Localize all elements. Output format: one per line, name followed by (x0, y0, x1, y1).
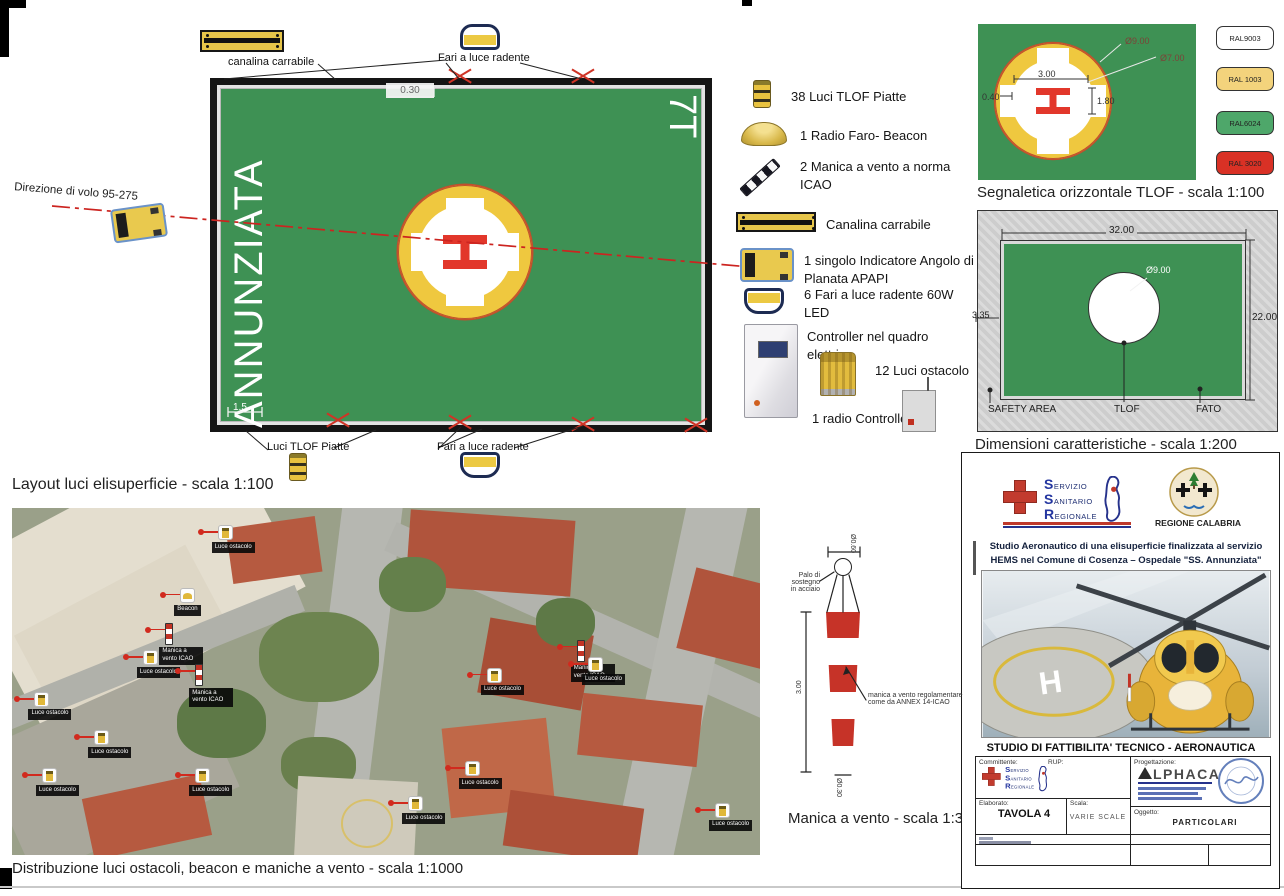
tb-table-line (1208, 844, 1209, 866)
oggetto-value: PARTICOLARI (1160, 818, 1250, 827)
calabria-outline-icon (1098, 476, 1128, 526)
dim-0-30: 0.30 (386, 83, 434, 98)
map-caption: Distribuzione luci ostacoli, beacon e ma… (12, 860, 463, 877)
map-marker-label: Luce ostacolo (481, 685, 524, 696)
radio-controller-icon (902, 390, 936, 432)
luce-icon (487, 668, 502, 683)
luce-icon (408, 796, 423, 811)
luce-icon (715, 803, 730, 818)
elaborato-label: Elaborato: (979, 800, 1009, 807)
map-marker-label: Luce ostacolo (459, 778, 502, 789)
ral-swatch: RAL6024 (1216, 111, 1274, 135)
fari-x-mark (448, 68, 472, 84)
flood-light-icon (460, 452, 500, 478)
canalina-icon (200, 30, 284, 52)
aerial-map: Luce ostacoloBeaconManica a vento ICAOLu… (12, 508, 760, 855)
calabria-outline-icon (1035, 766, 1052, 794)
legend-item-label: 2 Manica a vento a norma ICAO (800, 158, 965, 193)
scala-value: VARIE SCALE (1068, 814, 1128, 821)
dim-circle: Ø9.00 (1146, 265, 1171, 275)
legend-item-label: 1 radio Controller (812, 410, 912, 428)
luce-icon (42, 768, 57, 783)
obstacle-light-icon (820, 352, 856, 396)
fari-top-label: Fari a luce radente (438, 52, 530, 64)
fine-print (1138, 787, 1206, 790)
pole-label-line1: Palo di sostegno (792, 572, 820, 586)
map-marker-label: Luce ostacolo (36, 785, 79, 796)
map-trees (536, 598, 596, 647)
flood-light-icon (460, 24, 500, 50)
pole-label: Palo di sostegno in acciaio (782, 572, 820, 593)
study-title: STUDIO DI FATTIBILITA' TECNICO - AERONAU… (975, 742, 1267, 754)
scan-artifact (0, 0, 9, 57)
tlof-light-icon (289, 453, 307, 481)
legend-item-label: Canalina carrabile (826, 216, 931, 234)
tb-table-line (975, 844, 1271, 845)
tlof-panel-caption: Segnaletica orizzontale TLOF - scala 1:1… (977, 184, 1264, 201)
fari-x-mark (684, 417, 708, 433)
drawing-sheet: ANNUNZIATA 7T 0.30 1.5 canalina carrabil… (0, 0, 1284, 896)
dim-sock-height: 3.00 (796, 680, 803, 694)
map-marker-label: Manica a vento ICAO (189, 688, 233, 707)
map-trees (379, 557, 446, 613)
legend-item-label: 38 Luci TLOF Piatte (791, 88, 906, 106)
map-marker-label: Luce ostacolo (582, 674, 625, 685)
ssr-logo-text: Servizio Sanitario Regionale (1005, 766, 1034, 791)
ssr-line: Regionale (1005, 783, 1034, 791)
apapi-indicator-icon (740, 248, 794, 282)
apapi-indicator-icon (110, 202, 168, 243)
alphaca-rule (1138, 782, 1212, 784)
rup-label: RUP: (1048, 759, 1064, 766)
beacon-icon (741, 122, 787, 146)
ssr-line: Regionale (1044, 508, 1097, 523)
fine-print (979, 837, 993, 840)
tavola-value: TAVOLA 4 (985, 808, 1063, 820)
windsock-sock (826, 612, 860, 772)
ssr-cross-icon (982, 767, 1001, 786)
label-safety-area: SAFETY AREA (988, 404, 1056, 415)
helicopter-image: H (981, 570, 1271, 738)
windsock-pole-ring (834, 558, 852, 576)
h-marking (1036, 88, 1070, 114)
sock-label-line1: manica a vento regolamentare (868, 692, 963, 699)
label-fato: FATO (1196, 404, 1221, 415)
map-marker-label: Luce ostacolo (137, 667, 180, 678)
luce-icon (94, 730, 109, 745)
luce-icon (465, 761, 480, 776)
map-marker-label: Luce ostacolo (189, 785, 232, 796)
dimensions-panel-caption: Dimensioni caratteristiche - scala 1:200 (975, 436, 1237, 453)
legend-item-label: 6 Fari a luce radente 60W LED (804, 286, 972, 321)
dim-h-height: 1.80 (1097, 96, 1115, 106)
dim-width: 32.00 (1106, 225, 1137, 236)
luce-icon (143, 650, 158, 665)
flood-light-icon (744, 288, 784, 314)
dim-offset: 3.35 (972, 310, 990, 320)
fari-x-mark (448, 414, 472, 430)
alphaca-logo: LPHACA (1138, 766, 1220, 782)
ral-swatch: RAL9003 (1216, 26, 1274, 50)
luci-tlof-label: Luci TLOF Piatte (267, 441, 349, 453)
fari-x-mark (326, 412, 350, 428)
plan-caption: Layout luci elisuperficie - scala 1:100 (12, 476, 273, 494)
ral-swatch: RAL 3020 (1216, 151, 1274, 175)
tb-table-line (1066, 798, 1067, 834)
alphaca-logo-text: LPHACA (1153, 766, 1220, 782)
manica-icon (195, 664, 203, 686)
sock-label: manica a vento regolamentare come da ANN… (868, 692, 963, 706)
canalina-icon (736, 212, 816, 232)
dim-h-stroke: 0.40 (982, 92, 1000, 102)
map-marker-label: Luce ostacolo (28, 709, 71, 720)
legend-item-label: 12 Luci ostacolo (875, 362, 969, 380)
flight-direction-label: Direzione di volo 95-275 (14, 181, 139, 203)
map-trees (259, 612, 379, 702)
tlof-circle (1088, 272, 1160, 344)
fari-x-mark (571, 68, 595, 84)
ssr-rule (1003, 526, 1131, 528)
ssr-rule (1003, 522, 1131, 525)
dim-cross: 3.00 (1038, 69, 1056, 79)
dim-outer: Ø9.00 (1125, 36, 1150, 46)
sock-label-line2: come da ANNEX 14-ICAO (868, 699, 950, 706)
map-marker-label: Luce ostacolo (212, 542, 255, 553)
tb-table-line (1130, 756, 1131, 866)
fine-print (1138, 797, 1202, 800)
tb-table-line (975, 798, 1131, 799)
manica-icon (165, 623, 173, 645)
luce-icon (588, 657, 603, 672)
canalina-label: canalina carrabile (228, 56, 314, 68)
map-marker-label: Luce ostacolo (88, 747, 131, 758)
committente-label: Committente: (979, 759, 1018, 766)
map-marker-label: Beacon (174, 605, 200, 616)
map-roof (502, 790, 643, 855)
max-weight-7t-marking: 7T (660, 94, 703, 138)
fine-print (1138, 792, 1198, 795)
scan-artifact (0, 0, 26, 8)
windsock-icon (739, 158, 781, 197)
fine-print (979, 841, 1031, 844)
luce-icon (34, 692, 49, 707)
dim-inner: Ø7.00 (1160, 53, 1185, 63)
dim-1-5: 1.5 (233, 402, 247, 413)
project-title: Studio Aeronautico di una elisuperficie … (982, 540, 1270, 568)
legend-item-label: 1 singolo Indicatore Angolo di Planata A… (804, 252, 976, 287)
scala-label: Scala: (1070, 800, 1088, 807)
map-roof (578, 693, 704, 768)
h-marking (443, 235, 487, 269)
regione-calabria-emblem-icon (1168, 466, 1220, 518)
stamp-icon (1218, 758, 1264, 804)
scan-artifact (742, 0, 752, 6)
map-marker-label: Luce ostacolo (402, 813, 445, 824)
ssr-logo-text: Servizio Sanitario Regionale (1044, 478, 1097, 523)
ral-swatch: RAL 1003 (1216, 67, 1274, 91)
dim-sock-top: Ø0.60 (849, 534, 856, 553)
beacon-icon (180, 588, 195, 603)
label-tlof: TLOF (1114, 404, 1140, 415)
legend-item-label: 1 Radio Faro- Beacon (800, 127, 927, 145)
tb-table-line (975, 834, 1271, 835)
ssr-cross-icon (1003, 480, 1037, 514)
map-marker-label: Luce ostacolo (709, 820, 752, 831)
pole-label-line2: in acciaio (791, 586, 820, 593)
oggetto-label: Oggetto: (1134, 809, 1159, 816)
dim-sock-bottom: Ø0.30 (835, 778, 842, 797)
pad-name-annunziata: ANNUNZIATA (226, 158, 272, 428)
dim-height: 22.00 (1252, 312, 1277, 323)
windsock-caption: Manica a vento - scala 1:30 (788, 810, 971, 827)
region-name: REGIONE CALABRIA (1150, 518, 1246, 528)
luce-icon (218, 525, 233, 540)
map-marker-label: Manica a vento ICAO (159, 647, 203, 666)
manica-icon (577, 640, 585, 662)
fari-x-mark (571, 416, 595, 432)
progettazione-label: Progettazione: (1134, 759, 1176, 766)
controller-cabinet-icon (744, 324, 798, 418)
tb-table-line (1131, 806, 1271, 807)
title-accent-bar (973, 541, 976, 575)
tlof-light-icon (753, 80, 771, 108)
luce-icon (195, 768, 210, 783)
